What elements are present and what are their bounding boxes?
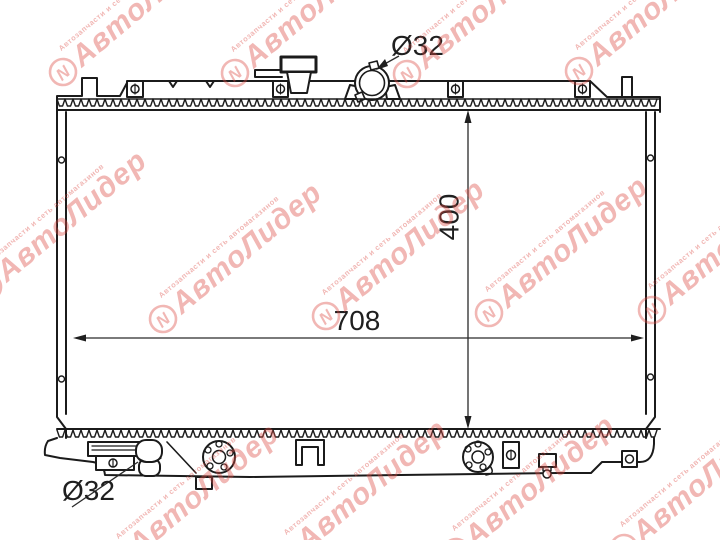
outlet-pipe: [136, 440, 162, 476]
screenshot-canvas: N АвтоЛидер Автозапчасти и сеть автомага…: [0, 0, 720, 540]
top-bracket: [448, 81, 463, 97]
top-bracket: [127, 81, 143, 97]
bottom-port-diameter-label: Ø32: [62, 475, 115, 506]
radiator-diagram: N АвтоЛидер Автозапчасти и сеть автомага…: [0, 0, 720, 540]
top-bracket: [273, 81, 288, 97]
bottom-bracket: [503, 442, 519, 468]
bottom-bracket: [622, 451, 637, 467]
